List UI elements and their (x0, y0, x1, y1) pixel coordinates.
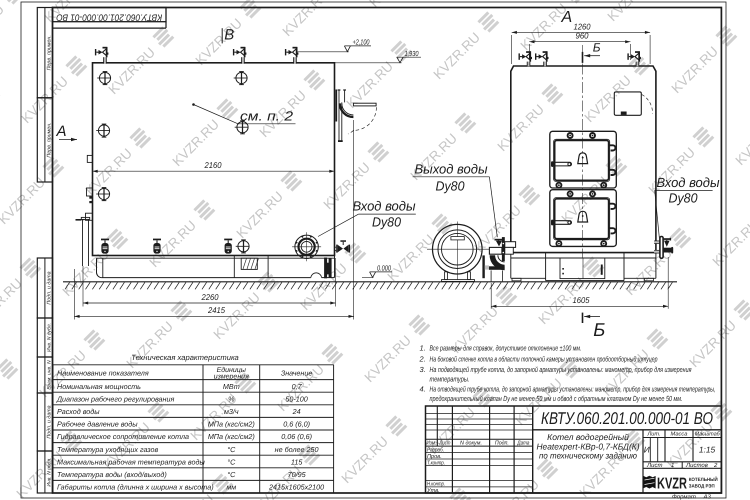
svg-text:°С: °С (227, 445, 236, 454)
svg-text:КВТУ.060.201.00.000-01 ВО: КВТУ.060.201.00.000-01 ВО (541, 409, 713, 428)
svg-text:Инв. N подл.: Инв. N подл. (46, 457, 52, 486)
svg-text:МПа (кгс/см2): МПа (кгс/см2) (208, 432, 255, 441)
svg-text:температуры.: температуры. (430, 375, 470, 384)
svg-text:Б: Б (593, 40, 601, 54)
svg-text:м3/ч: м3/ч (224, 407, 239, 416)
svg-text:Все размеры для справок, допус: Все размеры для справок, допустимое откл… (430, 344, 582, 353)
svg-text:Н.контр.: Н.контр. (427, 482, 445, 488)
svg-text:115: 115 (291, 457, 303, 466)
svg-text:1,930: 1,930 (405, 49, 420, 58)
svg-text:МПа (кгс/см2): МПа (кгс/см2) (208, 420, 255, 429)
svg-text:Листов: Листов (685, 462, 708, 469)
svg-text:Подп.: Подп. (495, 440, 509, 447)
svg-text:3.: 3. (420, 365, 426, 374)
svg-text:1.: 1. (420, 344, 426, 353)
svg-text:Изм.: Изм. (426, 441, 436, 447)
svg-text:N докум.: N докум. (460, 440, 482, 447)
svg-text:2415х1605х2100: 2415х1605х2100 (268, 483, 324, 492)
svg-text:2415: 2415 (207, 305, 225, 315)
svg-text:КОТЕЛЬНЫЙ: КОТЕЛЬНЫЙ (689, 476, 719, 483)
svg-text:Формат: Формат (672, 494, 696, 500)
svg-text:мм: мм (226, 483, 236, 492)
svg-text:Т.контр.: Т.контр. (427, 460, 445, 466)
svg-text:А: А (561, 9, 573, 26)
svg-text:МВт: МВт (223, 382, 240, 391)
svg-text:KVZR: KVZR (657, 476, 687, 493)
svg-text:Взам. инв. N: Взам. инв. N (46, 360, 52, 390)
svg-text:предохранительный клапан Dу н: предохранительный клапан Dу не менее 50 … (430, 394, 683, 403)
svg-text:Лист: Лист (646, 462, 662, 469)
svg-text:Значение: Значение (281, 368, 313, 377)
svg-text:не более 250: не более 250 (275, 445, 319, 454)
svg-text:2260: 2260 (201, 292, 219, 302)
svg-text:2.: 2. (419, 354, 426, 363)
svg-text:КВТУ.060.201.00.000-01 ВО: КВТУ.060.201.00.000-01 ВО (56, 13, 162, 23)
svg-text:Гидравлическое сопротивление к: Гидравлическое сопротивление котла (57, 432, 189, 441)
svg-text:Dy80: Dy80 (372, 215, 402, 230)
svg-text:Номинальная мощность: Номинальная мощность (57, 382, 141, 391)
svg-text:0,06 (0,6): 0,06 (0,6) (281, 432, 312, 441)
svg-text:%: % (228, 394, 235, 403)
svg-text:Пров.: Пров. (427, 454, 442, 460)
svg-text:На отводящей трубе котла, до з: На отводящей трубе котла, до запорной ар… (430, 384, 716, 393)
svg-text:Перв. примен.: Перв. примен. (46, 122, 52, 157)
svg-text:Вход воды: Вход воды (657, 175, 720, 190)
svg-text:А: А (56, 123, 67, 140)
svg-text:Температура воды (вход/выход): Температура воды (вход/выход) (57, 470, 167, 479)
svg-text:Габариты котла (длинна х ширин: Габариты котла (длинна х ширина х высота… (57, 483, 214, 492)
svg-text:4.: 4. (420, 384, 426, 393)
svg-text:50-100: 50-100 (285, 394, 307, 403)
svg-text:На подводящей трубе котла, до: На подводящей трубе котла, до запорной а… (430, 365, 692, 374)
svg-text:Единицы: Единицы (217, 366, 247, 374)
svg-text:Лист: Лист (439, 441, 451, 447)
svg-text:2: 2 (713, 462, 718, 469)
svg-text:Выход воды: Выход воды (415, 161, 488, 176)
svg-text:Dy80: Dy80 (436, 178, 466, 193)
svg-text:Подп. и дата: Подп. и дата (46, 271, 52, 304)
svg-text:Расход воды: Расход воды (57, 407, 100, 416)
svg-text:Утв.: Утв. (426, 488, 440, 494)
svg-text:ЗАВОД РЭП: ЗАВОД РЭП (689, 484, 716, 490)
svg-text:Лит.: Лит. (646, 432, 660, 438)
svg-text:+2,100: +2,100 (353, 38, 371, 47)
svg-text:Масштаб: Масштаб (695, 431, 721, 438)
svg-text:Dy80: Dy80 (669, 190, 699, 205)
svg-text:Максимальная рабочая температу: Максимальная рабочая температура воды (57, 457, 205, 466)
svg-text:В: В (224, 27, 234, 44)
svg-text:960: 960 (576, 31, 589, 41)
svg-text:Дата: Дата (517, 441, 530, 447)
svg-text:Б: Б (593, 319, 605, 340)
svg-text:Масса: Масса (671, 432, 688, 438)
svg-text:1605: 1605 (573, 295, 590, 305)
svg-text:И: И (644, 444, 650, 454)
svg-text:°С: °С (227, 470, 236, 479)
svg-text:Разраб.: Разраб. (427, 446, 444, 453)
svg-text:Подп. и дата: Подп. и дата (46, 405, 52, 438)
svg-text:Инв. N дубл.: Инв. N дубл. (46, 323, 52, 352)
svg-text:1: 1 (671, 462, 674, 469)
svg-text:Вход воды: Вход воды (353, 199, 416, 214)
svg-text:А3: А3 (703, 494, 712, 500)
svg-text:70/95: 70/95 (288, 470, 307, 479)
svg-text:Рабочее давление воды: Рабочее давление воды (57, 420, 138, 429)
svg-text:0,6 (6,0): 0,6 (6,0) (283, 420, 310, 429)
svg-text:Перв. примен.: Перв. примен. (46, 35, 52, 70)
svg-text:Наименование показателя: Наименование показателя (57, 368, 149, 377)
svg-text:24: 24 (292, 407, 301, 416)
svg-text:На боковой стенке котла в обла: На боковой стенке котла в области топочн… (430, 354, 658, 363)
svg-text:Температура уходящих газов: Температура уходящих газов (57, 445, 159, 454)
svg-text:по техническому заданию: по техническому заданию (539, 450, 637, 460)
svg-text:0,7: 0,7 (292, 382, 303, 391)
svg-text:°С: °С (227, 457, 236, 466)
svg-text:Диапазон рабочего регулировани: Диапазон рабочего регулирования (56, 394, 175, 403)
svg-text:2160: 2160 (204, 160, 222, 170)
svg-text:0.000: 0.000 (377, 264, 392, 273)
svg-text:см. п. 2: см. п. 2 (240, 109, 294, 124)
svg-text:1:15: 1:15 (699, 444, 716, 454)
svg-text:Техническая характеристика: Техническая характеристика (131, 353, 239, 362)
svg-text:измерения: измерения (214, 374, 249, 381)
